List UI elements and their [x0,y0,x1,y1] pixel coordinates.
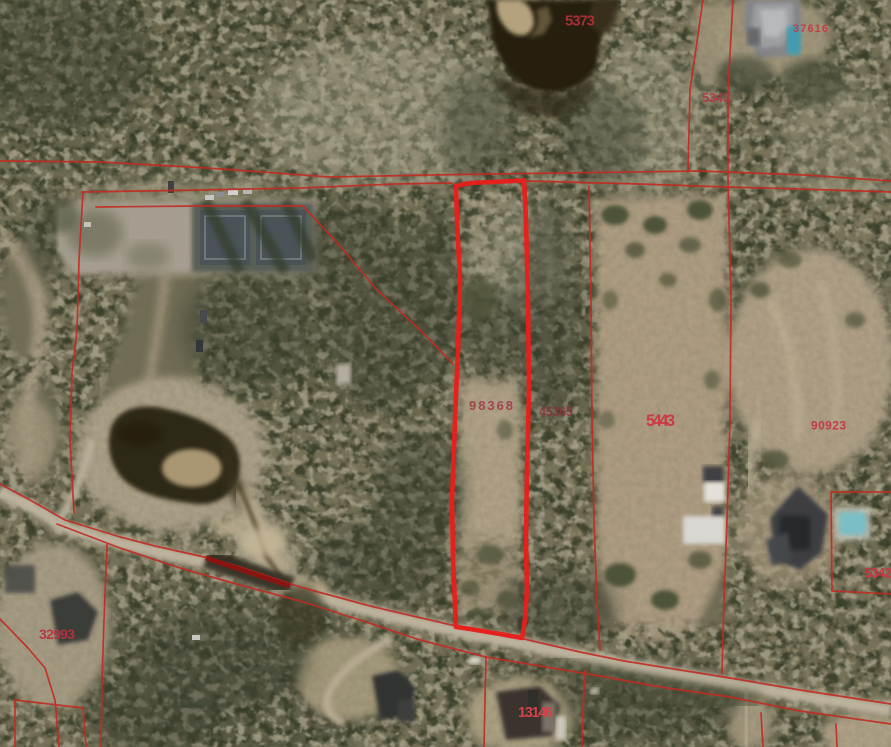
svg-text:32993: 32993 [39,626,75,642]
svg-text:5342: 5342 [864,565,891,581]
svg-text:90923: 90923 [811,419,846,433]
svg-text:5443: 5443 [646,412,675,430]
svg-text:5343: 5343 [702,90,730,105]
svg-text:37616: 37616 [793,23,828,35]
svg-text:13146: 13146 [518,705,553,721]
svg-text:45365: 45365 [539,405,573,419]
svg-text:5373: 5373 [565,13,595,30]
svg-text:98368: 98368 [469,398,513,413]
